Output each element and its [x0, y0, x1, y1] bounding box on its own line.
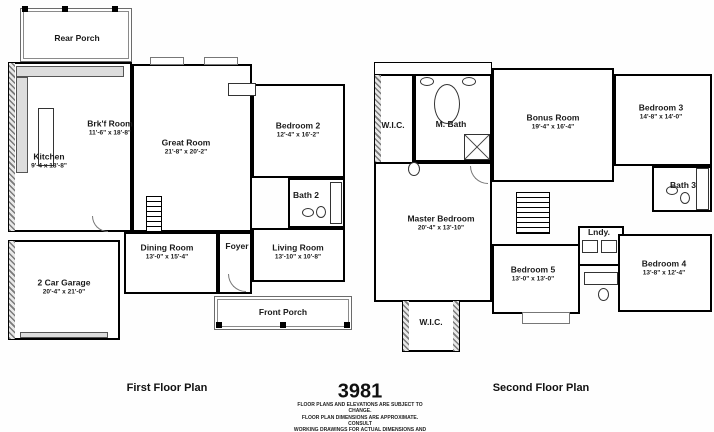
wall-hatch [9, 63, 15, 231]
disclaimer-line: WORKING DRAWINGS FOR ACTUAL DIMENSIONS A… [290, 427, 430, 432]
room-master-bedroom [374, 162, 492, 302]
label-garage: 2 Car Garage 20'-4" x 21'-0" [38, 278, 91, 295]
porch-post [344, 322, 350, 328]
disclaimer-text: FLOOR PLANS AND ELEVATIONS ARE SUBJECT T… [290, 402, 430, 432]
label-bonus-room: Bonus Room 19'-4" x 16'-4" [527, 113, 580, 130]
first-floor-caption: First Floor Plan [127, 382, 208, 394]
label-great-room: Great Room 21'-8" x 20'-2" [162, 138, 211, 155]
wall-hatch [453, 301, 459, 351]
bath3-toilet [680, 192, 690, 204]
label-bedroom-5: Bedroom 5 13'-0" x 13'-0" [511, 265, 555, 282]
room-dining-room [124, 232, 218, 294]
label-foyer: Foyer [225, 242, 248, 252]
label-rear-porch: Rear Porch [54, 34, 99, 44]
label-bedroom-3: Bedroom 3 14'-8" x 14'-0" [639, 103, 683, 120]
wall-hatch [403, 301, 409, 351]
kitchen-counter-top [16, 66, 124, 77]
bath2-sink [302, 208, 314, 217]
label-bath-2: Bath 2 [293, 191, 319, 201]
stairs-first-floor [146, 196, 162, 232]
label-wic-bottom: W.I.C. [419, 318, 442, 328]
label-bedroom-2: Bedroom 2 12'-4" x 16'-2" [276, 121, 320, 138]
hall-bath-tub [584, 272, 618, 285]
porch-post [112, 6, 118, 12]
master-bath-tub [434, 84, 460, 124]
dryer [601, 240, 617, 253]
plan-number: 3981 [338, 381, 383, 404]
label-bedroom-4: Bedroom 4 13'-8" x 12'-4" [642, 259, 686, 276]
porch-post [280, 322, 286, 328]
washer [582, 240, 598, 253]
bath2-tub [330, 182, 342, 224]
label-wic-top: W.I.C. [381, 121, 404, 131]
disclaimer-line: FLOOR PLAN DIMENSIONS ARE APPROXIMATE. C… [290, 415, 430, 428]
label-breakfast-room: Brk'f Room 11'-6" x 18'-8" [87, 119, 132, 136]
label-master-bedroom: Master Bedroom 20'-4" x 13'-10" [407, 214, 474, 231]
garage-door [20, 332, 108, 338]
porch-post [22, 6, 28, 12]
bay-window [204, 57, 238, 65]
hall-bath-toilet [598, 288, 609, 301]
master-bath-sink [462, 77, 476, 86]
bath3-tub [696, 168, 709, 210]
kitchen-counter-side [16, 77, 28, 173]
label-laundry: Lndy. [588, 228, 610, 238]
label-living-room: Living Room 13'-10" x 10'-8" [272, 243, 323, 260]
floorplan-sheet: Rear Porch Brk'f Room 11'-6" x 18'-8" Ki… [0, 0, 714, 432]
porch-post [216, 322, 222, 328]
bay-window [150, 57, 184, 65]
stairs-second-floor [516, 192, 550, 234]
toilet [408, 162, 420, 176]
master-bath-sink [420, 77, 434, 86]
second-floor-caption: Second Floor Plan [493, 382, 590, 394]
porch-post [62, 6, 68, 12]
wall-hatch [9, 241, 15, 339]
bath2-toilet [316, 206, 326, 218]
label-front-porch: Front Porch [259, 308, 307, 318]
label-dining-room: Dining Room 13'-0" x 15'-4" [141, 243, 194, 260]
disclaimer-line: FLOOR PLANS AND ELEVATIONS ARE SUBJECT T… [290, 402, 430, 415]
label-kitchen: Kitchen 9'-4 x 18'-8" [31, 152, 67, 169]
master-shower [464, 134, 490, 160]
label-bath-3: Bath 3 [670, 181, 696, 191]
label-master-bath: M. Bath [436, 120, 467, 130]
bay-window [522, 312, 570, 324]
fireplace [228, 83, 256, 96]
